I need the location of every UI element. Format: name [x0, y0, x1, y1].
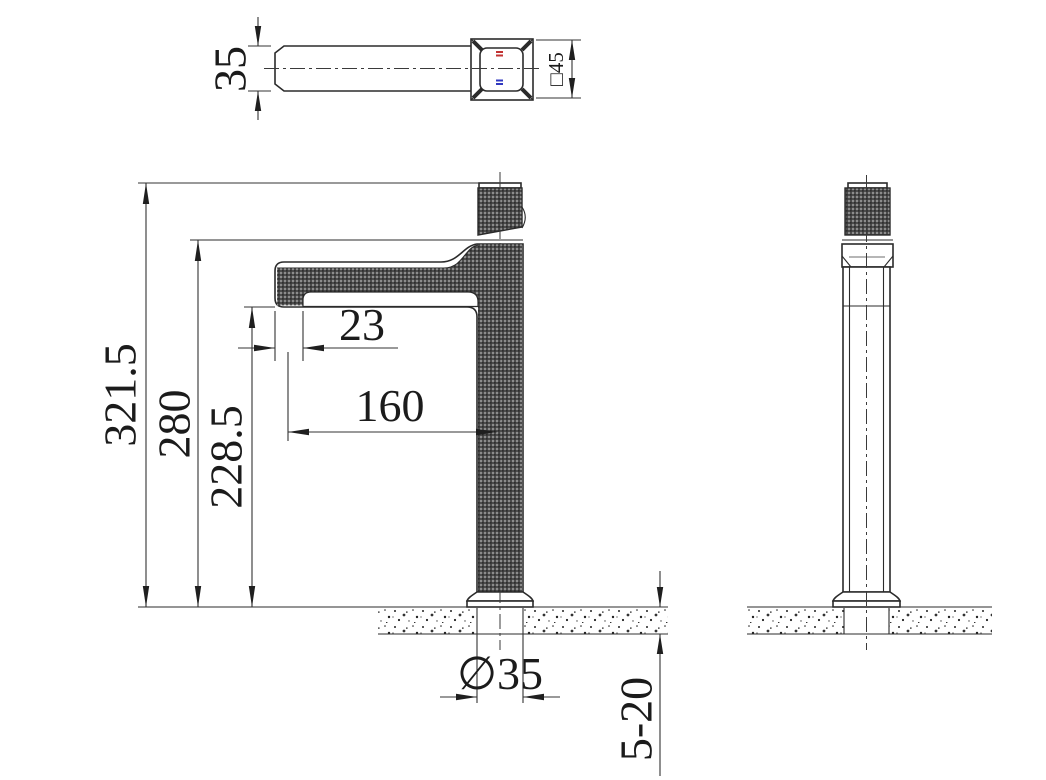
dimension-label-23: 23 [339, 299, 385, 350]
dimension-label-5-20: 5-20 [611, 677, 662, 761]
handle-knob-front [478, 183, 525, 235]
spout-section-side [842, 244, 893, 267]
dimension-deck-thickness: 5-20 [611, 571, 669, 776]
handle-plan [471, 39, 533, 100]
dimension-label-dia35: ∅35 [457, 648, 543, 699]
dimension-handle-square: □45 [536, 40, 581, 98]
countertop-side [747, 607, 992, 635]
dimension-outlet-height: 228.5 [201, 307, 276, 607]
dimension-spout-top-height: 280 [149, 240, 202, 607]
dimension-tube-width: 35 [205, 17, 272, 120]
dimension-label-228-5: 228.5 [201, 405, 252, 509]
dimension-label-square45: □45 [544, 52, 568, 86]
drawing-canvas: 35 □45 [0, 0, 1046, 780]
countertop-front [138, 607, 668, 635]
dimension-spout-reach: 160 [288, 352, 497, 441]
side-view [833, 175, 900, 650]
top-view: 35 □45 [205, 17, 582, 120]
dimension-label-280: 280 [149, 390, 200, 459]
dimension-outlet-width: 23 [238, 299, 398, 361]
dimension-label-321-5: 321.5 [95, 343, 146, 447]
knob-knurl-side [845, 188, 890, 235]
spout-underside-chamfer [303, 292, 478, 307]
dimension-label-160: 160 [356, 380, 425, 431]
knob-cap-side [848, 183, 887, 188]
collar-lines [190, 240, 523, 244]
faucet-technical-drawing: 35 □45 [0, 0, 1046, 780]
dimension-label-35: 35 [205, 46, 256, 92]
